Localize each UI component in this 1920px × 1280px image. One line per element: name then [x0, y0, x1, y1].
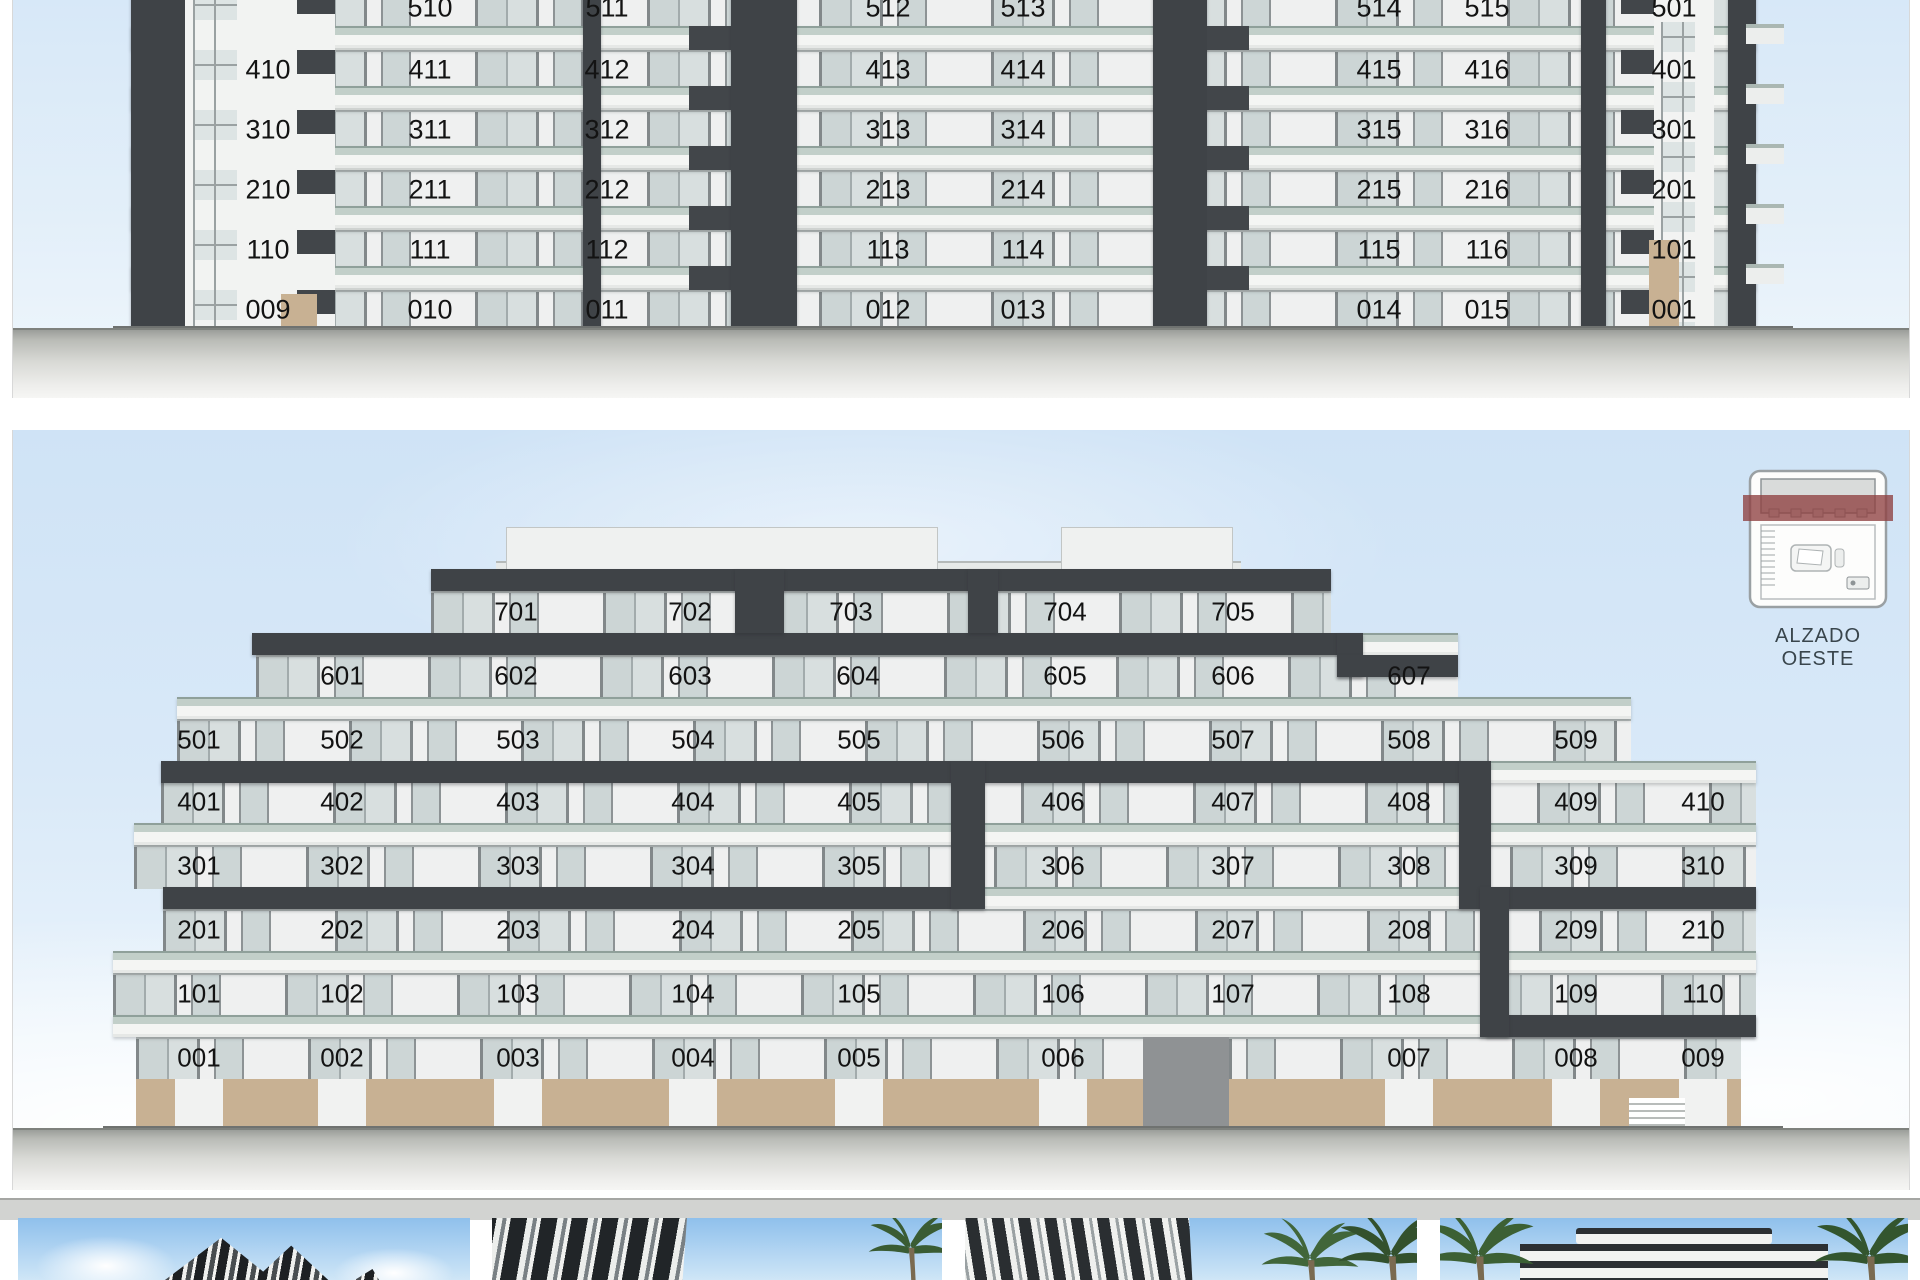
unit-number-508: 508: [1387, 725, 1430, 756]
unit-number-304: 304: [671, 851, 714, 882]
unit-number-705: 705: [1211, 597, 1254, 628]
unit-number-213: 213: [865, 175, 910, 206]
unit-number-208: 208: [1387, 915, 1430, 946]
unit-number-301: 301: [177, 851, 220, 882]
unit-number-001: 001: [1651, 295, 1696, 326]
unit-number-407: 407: [1211, 787, 1254, 818]
unit-number-205: 205: [837, 915, 880, 946]
unit-number-316: 316: [1464, 115, 1509, 146]
unit-number-307: 307: [1211, 851, 1254, 882]
unit-number-401: 401: [177, 787, 220, 818]
unit-number-402: 402: [320, 787, 363, 818]
unit-number-104: 104: [671, 979, 714, 1010]
architectural-elevation-sheet: 5105115125135145155014104114124134144154…: [0, 0, 1920, 1280]
unit-number-001: 001: [177, 1043, 220, 1074]
unit-number-209: 209: [1554, 915, 1597, 946]
unit-number-314: 314: [1000, 115, 1045, 146]
palm-tree-icon: [1440, 1218, 1541, 1280]
unit-number-311: 311: [408, 115, 451, 146]
unit-number-310: 310: [245, 115, 290, 146]
unit-number-604: 604: [836, 661, 879, 692]
thumbnail-building: [1520, 1244, 1829, 1280]
unit-number-203: 203: [496, 915, 539, 946]
unit-number-601: 601: [320, 661, 363, 692]
unit-number-412: 412: [584, 55, 629, 86]
unit-number-210: 210: [1681, 915, 1724, 946]
unit-number-310: 310: [1681, 851, 1724, 882]
unit-number-512: 512: [865, 0, 910, 24]
unit-number-413: 413: [865, 55, 910, 86]
unit-number-315: 315: [1356, 115, 1401, 146]
unit-number-312: 312: [584, 115, 629, 146]
unit-number-004: 004: [671, 1043, 714, 1074]
thumbnail-building: [492, 1218, 687, 1280]
unit-number-206: 206: [1041, 915, 1084, 946]
palm-tree-icon: [863, 1218, 942, 1280]
render-thumbnail-1[interactable]: [18, 1218, 470, 1280]
unit-number-103: 103: [496, 979, 539, 1010]
unit-number-308: 308: [1387, 851, 1430, 882]
unit-number-105: 105: [837, 979, 880, 1010]
top-elevation-unit-numbers: 5105115125135145155014104114124134144154…: [13, 0, 1909, 398]
unit-number-112: 112: [585, 235, 628, 266]
unit-number-606: 606: [1211, 661, 1254, 692]
elevation-west-panel: 7017027037047056016026036046056066075015…: [12, 430, 1910, 1190]
cloud: [334, 1248, 454, 1280]
unit-number-704: 704: [1043, 597, 1086, 628]
unit-number-301: 301: [1651, 115, 1696, 146]
unit-number-408: 408: [1387, 787, 1430, 818]
unit-number-116: 116: [1465, 235, 1508, 266]
unit-number-201: 201: [177, 915, 220, 946]
unit-number-411: 411: [408, 55, 451, 86]
unit-number-410: 410: [245, 55, 290, 86]
unit-number-207: 207: [1211, 915, 1254, 946]
unit-number-211: 211: [408, 175, 451, 206]
unit-number-509: 509: [1554, 725, 1597, 756]
unit-number-515: 515: [1464, 0, 1509, 24]
unit-number-507: 507: [1211, 725, 1254, 756]
unit-number-511: 511: [585, 0, 628, 24]
elevation-top-panel: 5105115125135145155014104114124134144154…: [12, 0, 1910, 398]
unit-number-006: 006: [1041, 1043, 1084, 1074]
unit-number-401: 401: [1651, 55, 1696, 86]
thumbnail-building: [965, 1218, 1196, 1280]
unit-number-410: 410: [1681, 787, 1724, 818]
unit-number-210: 210: [245, 175, 290, 206]
unit-number-510: 510: [407, 0, 452, 24]
unit-number-416: 416: [1464, 55, 1509, 86]
unit-number-007: 007: [1387, 1043, 1430, 1074]
unit-number-110: 110: [246, 235, 289, 266]
unit-number-214: 214: [1000, 175, 1045, 206]
unit-number-514: 514: [1356, 0, 1401, 24]
keyplan-icon: [1743, 465, 1893, 620]
unit-number-011: 011: [585, 295, 628, 326]
unit-number-603: 603: [668, 661, 711, 692]
thumbnail-divider-bar: [0, 1198, 1920, 1220]
keyplan-label: ALZADO OESTE: [1743, 625, 1893, 671]
render-thumbnail-4[interactable]: [1440, 1218, 1908, 1280]
unit-number-216: 216: [1464, 175, 1509, 206]
unit-number-113: 113: [866, 235, 909, 266]
unit-number-503: 503: [496, 725, 539, 756]
west-elevation-unit-numbers: 7017027037047056016026036046056066075015…: [13, 430, 1909, 1190]
unit-number-101: 101: [177, 979, 220, 1010]
unit-number-002: 002: [320, 1043, 363, 1074]
unit-number-107: 107: [1211, 979, 1254, 1010]
unit-number-504: 504: [671, 725, 714, 756]
unit-number-313: 313: [865, 115, 910, 146]
unit-number-109: 109: [1554, 979, 1597, 1010]
unit-number-605: 605: [1043, 661, 1086, 692]
unit-number-302: 302: [320, 851, 363, 882]
unit-number-201: 201: [1651, 175, 1696, 206]
unit-number-305: 305: [837, 851, 880, 882]
unit-number-513: 513: [1000, 0, 1045, 24]
unit-number-005: 005: [837, 1043, 880, 1074]
unit-number-012: 012: [865, 295, 910, 326]
unit-number-106: 106: [1041, 979, 1084, 1010]
unit-number-505: 505: [837, 725, 880, 756]
unit-number-309: 309: [1554, 851, 1597, 882]
unit-number-701: 701: [494, 597, 537, 628]
palm-tree-icon: [1331, 1218, 1417, 1280]
unit-number-101: 101: [1651, 235, 1696, 266]
thumbnail-building: [1576, 1228, 1773, 1244]
unit-number-111: 111: [409, 235, 450, 266]
unit-number-108: 108: [1387, 979, 1430, 1010]
unit-number-404: 404: [671, 787, 714, 818]
unit-number-506: 506: [1041, 725, 1084, 756]
unit-number-303: 303: [496, 851, 539, 882]
unit-number-215: 215: [1356, 175, 1401, 206]
unit-number-501: 501: [1651, 0, 1696, 24]
unit-number-202: 202: [320, 915, 363, 946]
unit-number-114: 114: [1001, 235, 1044, 266]
cloud: [36, 1236, 176, 1280]
unit-number-212: 212: [584, 175, 629, 206]
unit-number-013: 013: [1000, 295, 1045, 326]
render-thumbnail-3[interactable]: [965, 1218, 1417, 1280]
unit-number-409: 409: [1554, 787, 1597, 818]
unit-number-406: 406: [1041, 787, 1084, 818]
unit-number-204: 204: [671, 915, 714, 946]
unit-number-405: 405: [837, 787, 880, 818]
unit-number-501: 501: [177, 725, 220, 756]
unit-number-414: 414: [1000, 55, 1045, 86]
unit-number-014: 014: [1356, 295, 1401, 326]
unit-number-403: 403: [496, 787, 539, 818]
keyplan: ALZADO OESTE: [1743, 465, 1893, 655]
unit-number-703: 703: [829, 597, 872, 628]
unit-number-602: 602: [494, 661, 537, 692]
unit-number-415: 415: [1356, 55, 1401, 86]
unit-number-010: 010: [407, 295, 452, 326]
render-thumbnail-2[interactable]: [492, 1218, 942, 1280]
unit-number-009: 009: [1681, 1043, 1724, 1074]
unit-number-003: 003: [496, 1043, 539, 1074]
unit-number-008: 008: [1554, 1043, 1597, 1074]
unit-number-009: 009: [245, 295, 290, 326]
unit-number-306: 306: [1041, 851, 1084, 882]
unit-number-102: 102: [320, 979, 363, 1010]
unit-number-015: 015: [1464, 295, 1509, 326]
unit-number-110: 110: [1682, 979, 1723, 1010]
unit-number-702: 702: [668, 597, 711, 628]
unit-number-502: 502: [320, 725, 363, 756]
unit-number-115: 115: [1357, 235, 1400, 266]
unit-number-607: 607: [1387, 661, 1430, 692]
palm-tree-icon: [1807, 1218, 1908, 1280]
